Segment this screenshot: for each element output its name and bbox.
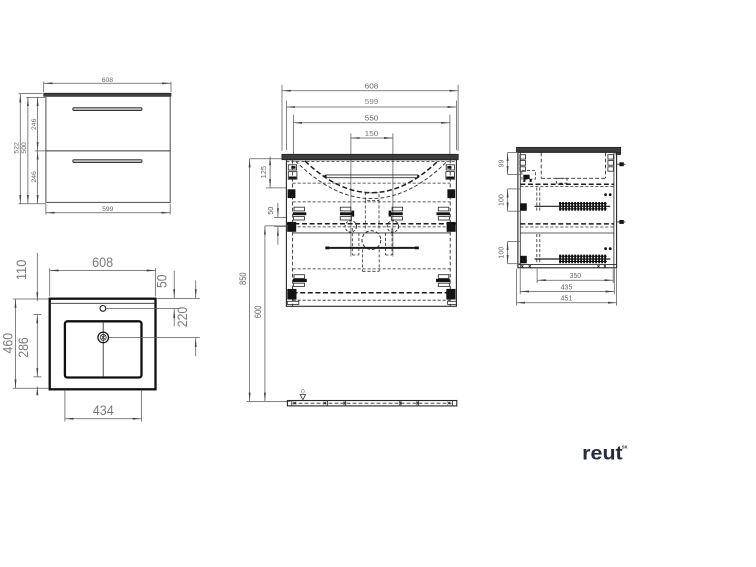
svg-text:451: 451 [561, 296, 573, 303]
svg-text:110: 110 [14, 260, 29, 281]
svg-text:286: 286 [16, 337, 31, 358]
svg-text:246: 246 [31, 171, 38, 183]
svg-text:100: 100 [499, 194, 506, 206]
svg-text:500: 500 [21, 142, 28, 154]
svg-text:522: 522 [14, 142, 21, 154]
svg-text:150: 150 [365, 131, 379, 138]
svg-text:599: 599 [365, 99, 379, 106]
svg-text:220: 220 [175, 307, 190, 328]
svg-text:350: 350 [569, 273, 581, 280]
svg-text:99: 99 [499, 160, 506, 168]
svg-text:600: 600 [253, 306, 263, 319]
svg-text:125: 125 [259, 166, 268, 178]
svg-text:460: 460 [1, 333, 16, 354]
svg-text:599: 599 [102, 206, 114, 213]
svg-text:50: 50 [155, 274, 170, 288]
svg-text:608: 608 [92, 255, 113, 270]
svg-text:SK: SK [622, 444, 628, 449]
svg-text:850: 850 [238, 272, 248, 285]
svg-text:608: 608 [365, 84, 379, 91]
svg-text:100: 100 [499, 247, 506, 259]
svg-text:550: 550 [365, 116, 379, 123]
svg-text:435: 435 [561, 285, 573, 292]
svg-text:434: 434 [93, 403, 114, 418]
svg-text:608: 608 [102, 77, 114, 84]
svg-text:reut: reut [582, 444, 623, 465]
svg-text:50: 50 [266, 207, 275, 215]
svg-text:246: 246 [31, 118, 38, 130]
